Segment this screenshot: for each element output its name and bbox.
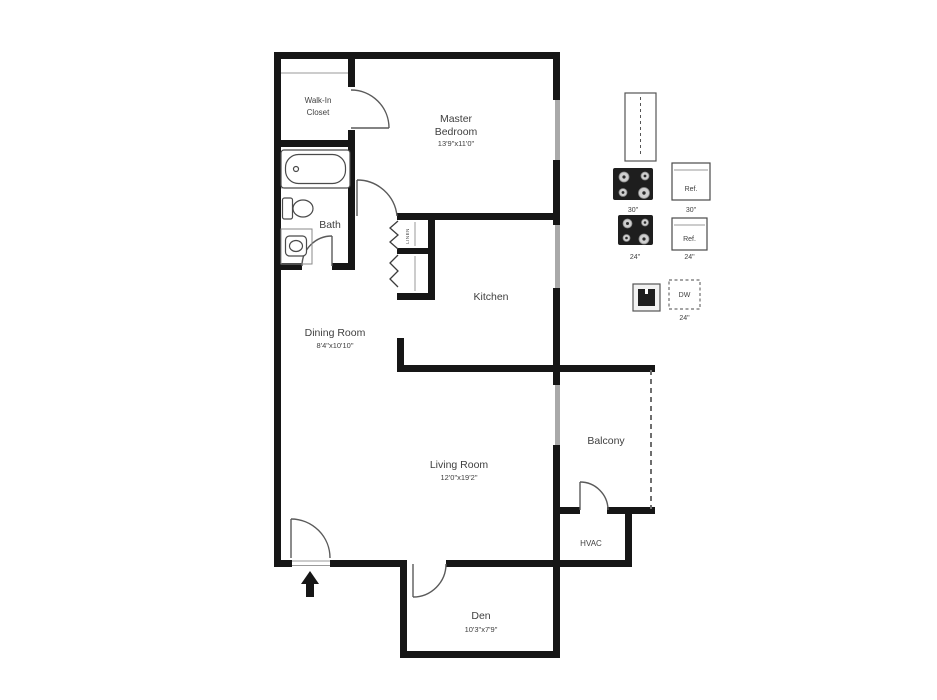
wall-hvac-bottom bbox=[553, 560, 632, 567]
wall-hvac-right bbox=[625, 507, 632, 567]
linen-closet-label: LINEN bbox=[405, 228, 410, 244]
master-bedroom-dims: 13'9"x11'0" bbox=[438, 139, 475, 148]
window-master bbox=[555, 100, 560, 160]
hvac-label: HVAC bbox=[580, 539, 602, 548]
fridge-30-body bbox=[672, 163, 710, 200]
hvac-door bbox=[580, 482, 608, 510]
burner-center bbox=[644, 175, 647, 178]
burner-center bbox=[622, 175, 625, 178]
living-room-label: Living Room bbox=[430, 459, 489, 471]
burner-center bbox=[622, 191, 625, 194]
walk-in-closet-label-1: Walk-In bbox=[305, 96, 332, 105]
fridge-24-icon: Ref. bbox=[672, 218, 707, 250]
wall-den-top bbox=[446, 560, 560, 567]
range-24-icon bbox=[618, 215, 653, 245]
range-30-size-label: 30" bbox=[628, 207, 639, 214]
dishwasher-icon: DW bbox=[669, 280, 700, 309]
wall-closet-right-upper bbox=[348, 52, 355, 87]
wall-den-bottom bbox=[400, 651, 560, 658]
wall-balcony-top bbox=[560, 365, 655, 372]
range-30-icon bbox=[613, 168, 653, 200]
entry-threshold-cut bbox=[292, 559, 330, 568]
sink-base-notch bbox=[645, 289, 648, 294]
entry-door-arc bbox=[291, 519, 330, 558]
bathtub-drain bbox=[294, 167, 299, 172]
wall-bottom-left bbox=[274, 560, 292, 567]
sink-bowl-icon bbox=[290, 241, 303, 252]
range-24-size-label: 24" bbox=[630, 254, 641, 261]
floor-plan: 30" Ref. 30" 24" Ref. 24" bbox=[0, 0, 937, 700]
balcony-label: Balcony bbox=[587, 435, 625, 447]
wall-closet-bottom bbox=[274, 140, 355, 147]
bath-fixtures bbox=[281, 150, 350, 264]
burner-center bbox=[644, 221, 647, 224]
window-living-slider bbox=[555, 385, 560, 445]
fridge-24-label: Ref. bbox=[683, 236, 696, 243]
closet-door bbox=[351, 90, 389, 128]
hvac-door-arc bbox=[580, 482, 608, 510]
burner-center bbox=[642, 237, 645, 240]
den-door bbox=[413, 564, 446, 597]
burner-center bbox=[626, 222, 629, 225]
dishwasher-label: DW bbox=[679, 292, 691, 299]
fridge-30-size-label: 30" bbox=[686, 207, 697, 214]
burner-center bbox=[642, 191, 645, 194]
bedroom-door-arc bbox=[357, 180, 397, 216]
wall-kitchen-bottom bbox=[397, 365, 560, 372]
burner-center bbox=[625, 237, 628, 240]
walk-in-closet-label-2: Closet bbox=[307, 108, 330, 117]
wall-bedroom-south bbox=[397, 213, 560, 220]
wall-den-left bbox=[400, 560, 407, 658]
dishwasher-size-label: 24" bbox=[679, 315, 690, 322]
master-bedroom-label-2: Bedroom bbox=[435, 126, 478, 138]
appliance-legend: 30" Ref. 30" 24" Ref. 24" bbox=[613, 93, 710, 322]
toilet-tank-icon bbox=[283, 198, 293, 219]
entry-door bbox=[291, 519, 330, 558]
fridge-24-size-label: 24" bbox=[684, 254, 695, 261]
wall-top bbox=[274, 52, 560, 59]
closet-door-arc bbox=[351, 90, 389, 128]
wall-kitchen-entry-stub bbox=[397, 338, 404, 365]
wall-hvac-top-left bbox=[553, 507, 580, 514]
fridge-30-icon: Ref. bbox=[672, 163, 710, 200]
wall-balcony-bottom bbox=[607, 507, 655, 514]
wall-bottom-mid bbox=[330, 560, 407, 567]
master-bedroom-label-1: Master bbox=[440, 113, 473, 125]
window-kitchen bbox=[555, 225, 560, 288]
wall-kitchen-left bbox=[428, 213, 435, 300]
sink-base-icon bbox=[633, 284, 660, 311]
den-label: Den bbox=[471, 610, 490, 622]
bifold-door-upper bbox=[390, 221, 398, 249]
toilet-bowl-icon bbox=[293, 200, 313, 217]
fridge-30-label: Ref. bbox=[685, 186, 698, 193]
den-dims: 10'3"x7'9" bbox=[465, 625, 498, 634]
bifold-doors bbox=[390, 221, 398, 287]
bedroom-door bbox=[357, 180, 397, 216]
dining-room-dims: 8'4"x10'10" bbox=[317, 341, 354, 350]
den-door-arc bbox=[413, 564, 446, 597]
kitchen-label: Kitchen bbox=[473, 291, 508, 303]
entry-arrow-icon bbox=[301, 571, 319, 597]
wall-den-right bbox=[553, 560, 560, 658]
bath-label: Bath bbox=[319, 219, 341, 231]
wall-left bbox=[274, 52, 281, 567]
fridge-24-body bbox=[672, 218, 707, 250]
living-room-dims: 12'0"x19'2" bbox=[441, 473, 478, 482]
wall-bath-bottom-right bbox=[332, 263, 355, 270]
bifold-door-lower bbox=[390, 255, 398, 287]
dining-room-label: Dining Room bbox=[305, 327, 366, 339]
windows bbox=[550, 100, 561, 445]
